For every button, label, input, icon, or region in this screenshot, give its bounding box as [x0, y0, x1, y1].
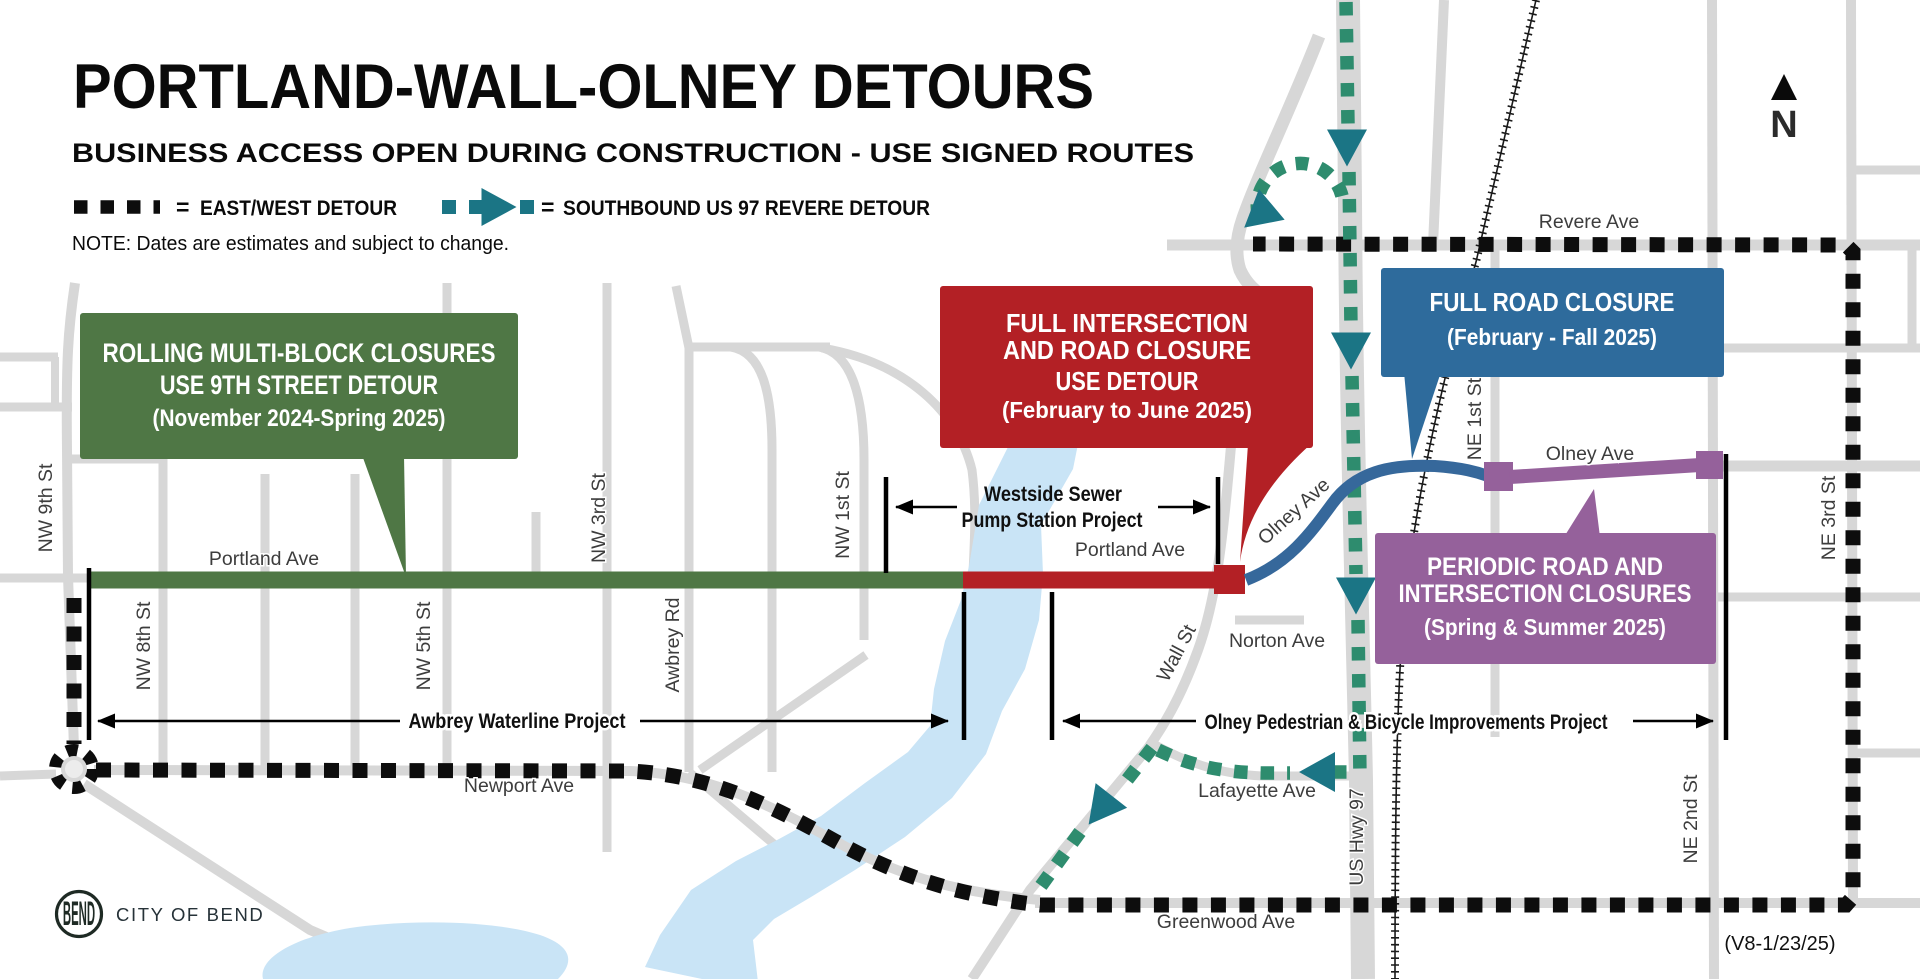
svg-text:NOTE: Dates are estimates and: NOTE: Dates are estimates and subject to… [72, 232, 509, 255]
svg-text:NW 9th St: NW 9th St [35, 463, 57, 552]
svg-text:CITY OF BEND: CITY OF BEND [116, 904, 264, 925]
svg-text:USE DETOUR: USE DETOUR [1056, 366, 1199, 396]
svg-text:BEND: BEND [63, 894, 95, 933]
svg-text:(February - Fall 2025): (February - Fall 2025) [1447, 324, 1657, 350]
svg-text:AND ROAD CLOSURE: AND ROAD CLOSURE [1003, 335, 1251, 365]
svg-text:=: = [176, 194, 189, 220]
svg-text:ROLLING MULTI-BLOCK CLOSURES: ROLLING MULTI-BLOCK CLOSURES [103, 338, 496, 368]
svg-text:(Spring & Summer 2025): (Spring & Summer 2025) [1424, 614, 1666, 640]
svg-text:Olney Ave: Olney Ave [1546, 443, 1635, 465]
svg-text:USE 9TH STREET DETOUR: USE 9TH STREET DETOUR [160, 370, 438, 400]
svg-text:PORTLAND-WALL-OLNEY DETOURS: PORTLAND-WALL-OLNEY DETOURS [73, 52, 1094, 122]
svg-text:Olney Pedestrian & Bicycle Imp: Olney Pedestrian & Bicycle Improvements … [1205, 711, 1608, 734]
svg-text:Lafayette Ave: Lafayette Ave [1198, 780, 1316, 802]
svg-text:NE 3rd St: NE 3rd St [1818, 475, 1840, 560]
svg-text:Awbrey Rd: Awbrey Rd [662, 597, 684, 692]
svg-text:NW 3rd St: NW 3rd St [588, 472, 610, 563]
svg-text:Westside Sewer: Westside Sewer [984, 483, 1122, 506]
svg-text:(November 2024-Spring 2025): (November 2024-Spring 2025) [153, 405, 446, 432]
svg-text:Portland Ave: Portland Ave [1075, 539, 1185, 561]
svg-text:NE 2nd St: NE 2nd St [1680, 774, 1702, 863]
svg-text:US Hwy 97: US Hwy 97 [1346, 788, 1368, 886]
svg-text:PERIODIC ROAD AND: PERIODIC ROAD AND [1427, 553, 1663, 581]
svg-text:EAST/WEST DETOUR: EAST/WEST DETOUR [200, 196, 397, 220]
svg-text:FULL ROAD CLOSURE: FULL ROAD CLOSURE [1430, 289, 1675, 317]
svg-text:(V8-1/23/25): (V8-1/23/25) [1724, 933, 1835, 955]
svg-text:NE 1st St: NE 1st St [1464, 377, 1486, 460]
svg-text:(February to June 2025): (February to June 2025) [1002, 397, 1252, 423]
svg-text:Revere Ave: Revere Ave [1539, 211, 1639, 233]
svg-text:NW 1st St: NW 1st St [832, 471, 854, 559]
svg-text:INTERSECTION CLOSURES: INTERSECTION CLOSURES [1399, 580, 1692, 608]
svg-text:BUSINESS ACCESS OPEN DURING CO: BUSINESS ACCESS OPEN DURING CONSTRUCTION… [72, 138, 1194, 168]
svg-text:SOUTHBOUND US 97 REVERE DETOUR: SOUTHBOUND US 97 REVERE DETOUR [563, 196, 930, 220]
svg-text:NW 5th St: NW 5th St [413, 601, 435, 690]
svg-text:Newport Ave: Newport Ave [464, 775, 574, 797]
svg-text:=: = [541, 194, 554, 220]
svg-text:Portland Ave: Portland Ave [209, 548, 319, 570]
svg-text:Pump Station Project: Pump Station Project [962, 509, 1143, 532]
svg-text:N: N [1770, 104, 1797, 146]
svg-text:Norton Ave: Norton Ave [1229, 630, 1325, 652]
svg-text:Greenwood Ave: Greenwood Ave [1157, 911, 1295, 933]
svg-text:FULL INTERSECTION: FULL INTERSECTION [1006, 308, 1248, 338]
svg-text:NW 8th St: NW 8th St [133, 601, 155, 690]
svg-text:Awbrey Waterline Project: Awbrey Waterline Project [409, 710, 626, 733]
